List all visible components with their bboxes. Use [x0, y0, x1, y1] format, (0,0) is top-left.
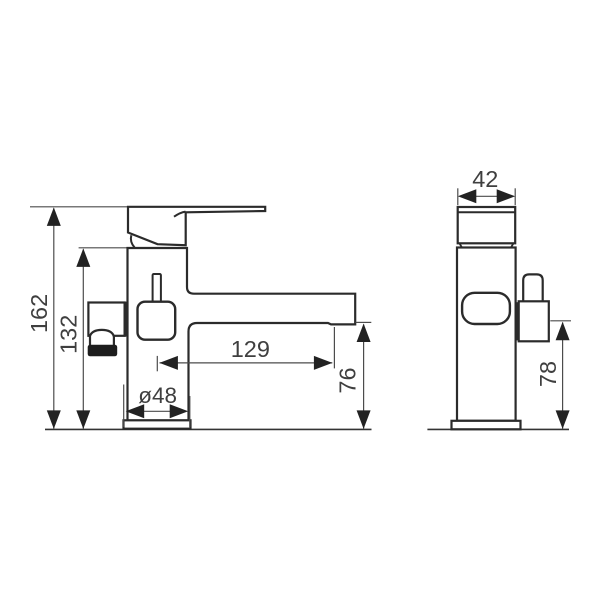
svg-text:78: 78: [535, 361, 561, 387]
svg-text:ø48: ø48: [138, 383, 177, 408]
svg-text:76: 76: [335, 367, 361, 393]
svg-text:129: 129: [231, 336, 270, 362]
svg-text:132: 132: [55, 315, 81, 354]
svg-text:162: 162: [26, 294, 52, 333]
svg-text:42: 42: [472, 166, 498, 192]
